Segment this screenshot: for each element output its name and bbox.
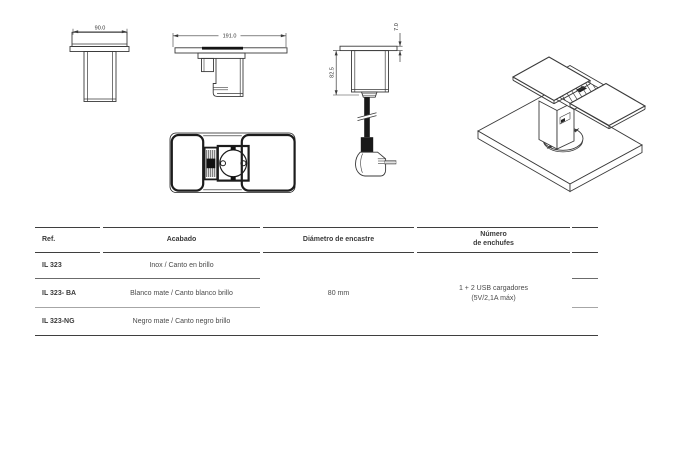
section-width-dim-label: 191.0 xyxy=(223,34,237,40)
header-top-border xyxy=(103,227,260,228)
row-ref: IL 323- BA xyxy=(42,289,76,298)
dim-arrow xyxy=(399,51,402,56)
row-ref: IL 323 xyxy=(42,261,62,270)
header-top-border xyxy=(263,227,414,228)
row-ref: IL 323-NG xyxy=(42,317,75,326)
row-separator xyxy=(572,307,598,308)
diameter-value: 80 mm xyxy=(263,289,414,298)
header-bottom-border xyxy=(572,252,598,253)
sockets-value: 1 + 2 USB cargadores (5V/2,1A máx) xyxy=(417,284,570,303)
section-view-drawing: 191.0 xyxy=(173,32,287,97)
dim-arrow xyxy=(122,30,127,33)
top-view-drawing xyxy=(170,133,295,193)
technical-drawings: 90.0 191.0 xyxy=(0,0,690,220)
row-separator xyxy=(35,307,260,308)
header-top-border xyxy=(417,227,570,228)
sockets-value-line2: (5V/2,1A máx) xyxy=(417,294,570,304)
profile-height-dim-label: 82.5 xyxy=(329,67,335,78)
row-separator xyxy=(572,278,598,279)
col-header-sockets-line2: de enchufes xyxy=(417,240,570,249)
row-separator xyxy=(35,278,260,279)
header-bottom-border xyxy=(263,252,414,253)
glass-strip xyxy=(202,47,243,50)
row-finish: Negro mate / Canto negro brillo xyxy=(103,317,260,326)
col-header-sockets-line1: Número xyxy=(417,231,570,240)
col-header-diameter: Diámetro de encastre xyxy=(263,235,414,244)
spec-table: Ref. Acabado Diámetro de encastre Número… xyxy=(35,227,598,336)
header-top-border xyxy=(35,227,100,228)
table-bottom-border xyxy=(35,335,598,336)
row-finish: Blanco mate / Canto blanco brillo xyxy=(103,289,260,298)
row-finish: Inox / Canto en brillo xyxy=(103,261,260,270)
left-sliding-cover xyxy=(172,135,203,191)
header-bottom-border xyxy=(417,252,570,253)
profile-thickness-dim-label: 7.0 xyxy=(394,23,400,31)
header-top-border xyxy=(572,227,598,228)
header-bottom-border xyxy=(103,252,260,253)
col-header-sockets: Número de enchufes xyxy=(417,231,570,248)
col-header-finish: Acabado xyxy=(103,235,260,244)
col-header-ref: Ref. xyxy=(42,235,55,244)
dim-arrow xyxy=(335,51,338,56)
dim-arrow xyxy=(399,41,402,46)
cable-sleeve xyxy=(361,137,373,152)
front-view-drawing: 90.0 xyxy=(70,26,129,102)
dim-arrow xyxy=(173,34,178,37)
schuko-plug xyxy=(356,152,386,176)
dim-arrow xyxy=(73,30,78,33)
profile-view-drawing: 7.0 82.5 xyxy=(329,23,402,176)
dim-arrow xyxy=(281,34,286,37)
front-width-dim-label: 90.0 xyxy=(95,26,106,32)
dim-arrow xyxy=(335,90,338,95)
schuko-socket xyxy=(218,146,249,181)
sockets-value-line1: 1 + 2 USB cargadores xyxy=(417,284,570,294)
header-bottom-border xyxy=(35,252,100,253)
right-sliding-cover xyxy=(242,135,295,191)
isometric-view-drawing: ø80 xyxy=(478,56,645,192)
